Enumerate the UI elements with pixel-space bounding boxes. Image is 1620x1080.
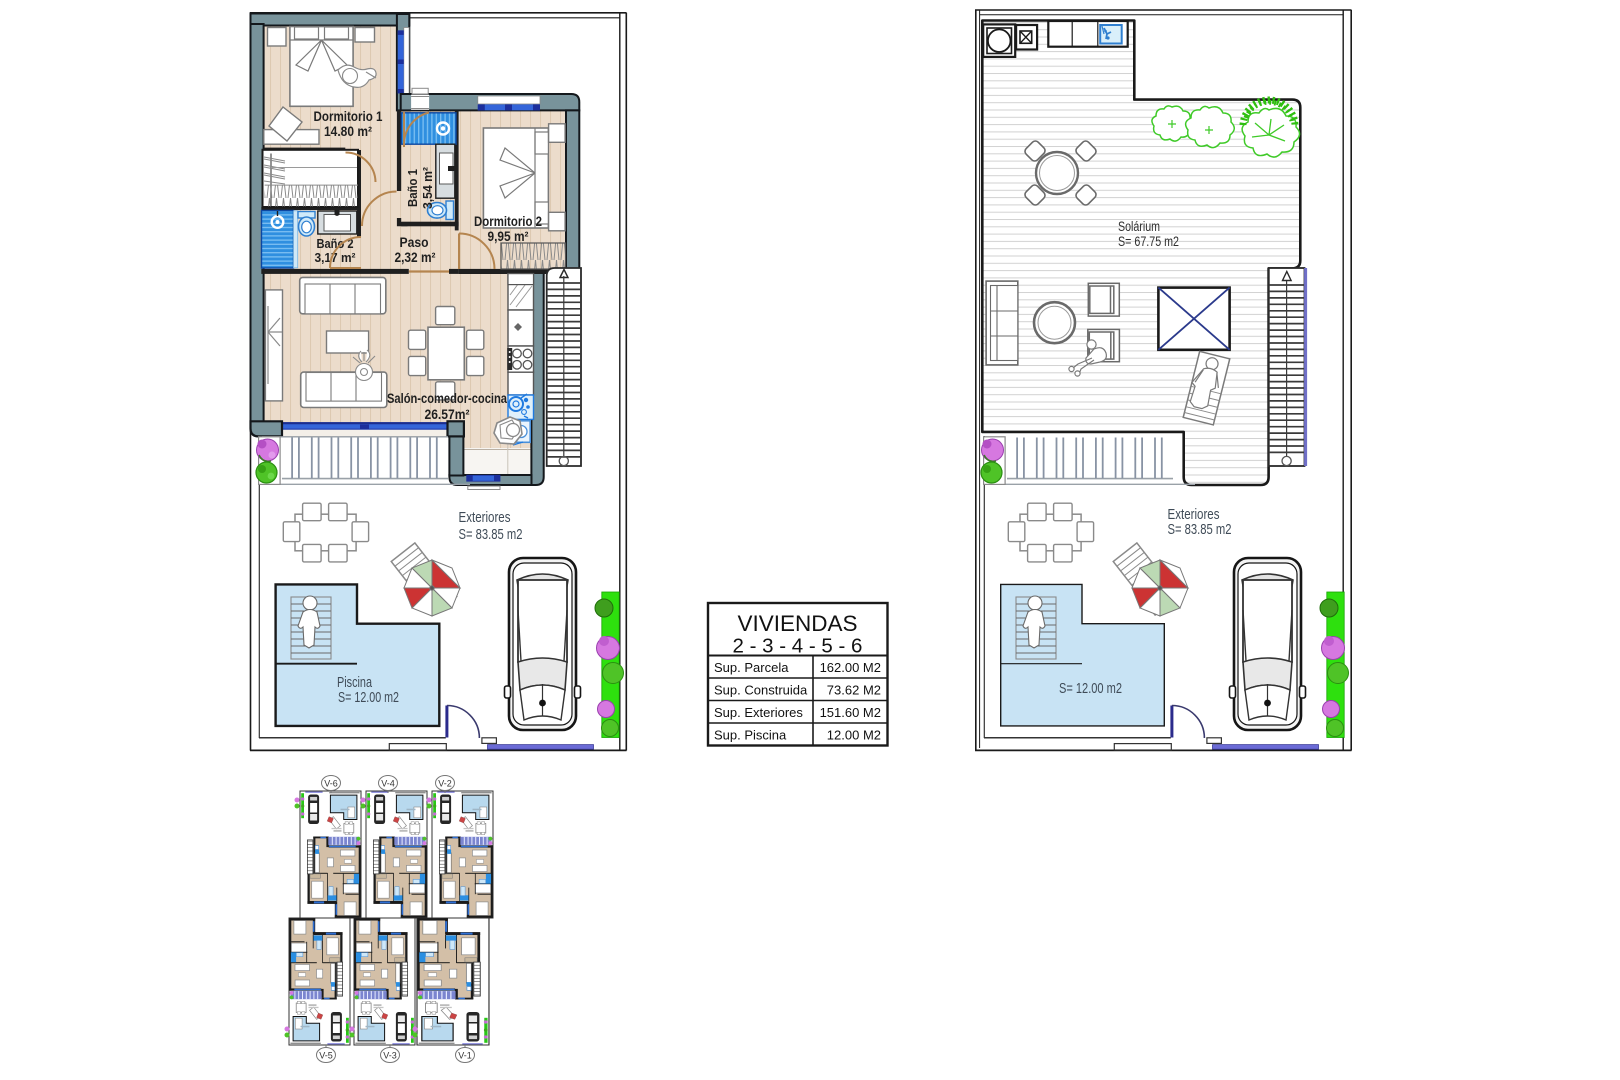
svg-text:12.00 M2: 12.00 M2: [827, 728, 881, 743]
svg-text:V-3: V-3: [383, 1051, 397, 1061]
svg-text:Exteriores: Exteriores: [459, 509, 511, 526]
svg-text:Baño 2: Baño 2: [317, 236, 354, 251]
svg-text:Dormitorio 1: Dormitorio 1: [314, 109, 383, 124]
svg-text:V-5: V-5: [319, 1051, 333, 1061]
svg-text:73.62 M2: 73.62 M2: [827, 683, 881, 698]
svg-text:14.80 m²: 14.80 m²: [324, 124, 372, 139]
svg-text:Sup. Exteriores: Sup. Exteriores: [714, 705, 803, 720]
svg-text:Sup. Construida: Sup. Construida: [714, 683, 808, 698]
svg-text:S= 83.85 m2: S= 83.85 m2: [1168, 521, 1232, 538]
svg-text:V-2: V-2: [438, 779, 452, 789]
svg-text:26.57m²: 26.57m²: [425, 406, 470, 422]
svg-text:Baño 1: Baño 1: [405, 169, 420, 207]
svg-text:VIVIENDAS: VIVIENDAS: [737, 611, 857, 636]
svg-text:S= 67.75 m2: S= 67.75 m2: [1118, 234, 1179, 249]
svg-text:V-6: V-6: [324, 779, 338, 789]
svg-text:V-1: V-1: [458, 1051, 472, 1061]
svg-text:2,32 m²: 2,32 m²: [395, 250, 436, 265]
svg-text:V-4: V-4: [381, 779, 395, 789]
svg-text:S= 83.85 m2: S= 83.85 m2: [459, 526, 523, 543]
svg-text:9,95 m²: 9,95 m²: [488, 229, 529, 244]
svg-text:Sup. Parcela: Sup. Parcela: [714, 660, 789, 675]
svg-text:151.60 M2: 151.60 M2: [820, 705, 881, 720]
svg-text:162.00 M2: 162.00 M2: [820, 660, 881, 675]
svg-text:3,54 m²: 3,54 m²: [420, 166, 435, 209]
svg-text:Sup. Piscina: Sup. Piscina: [714, 728, 787, 743]
svg-text:Solárium: Solárium: [1118, 219, 1160, 234]
svg-text:Paso: Paso: [400, 235, 429, 250]
svg-text:Dormitorio 2: Dormitorio 2: [474, 214, 542, 229]
svg-text:2 - 3 - 4 - 5 - 6: 2 - 3 - 4 - 5 - 6: [733, 635, 863, 658]
svg-text:Salón-comedor-cocina: Salón-comedor-cocina: [387, 390, 507, 406]
svg-text:S= 12.00 m2: S= 12.00 m2: [1059, 680, 1122, 697]
svg-text:S= 12.00 m2: S= 12.00 m2: [338, 689, 399, 706]
